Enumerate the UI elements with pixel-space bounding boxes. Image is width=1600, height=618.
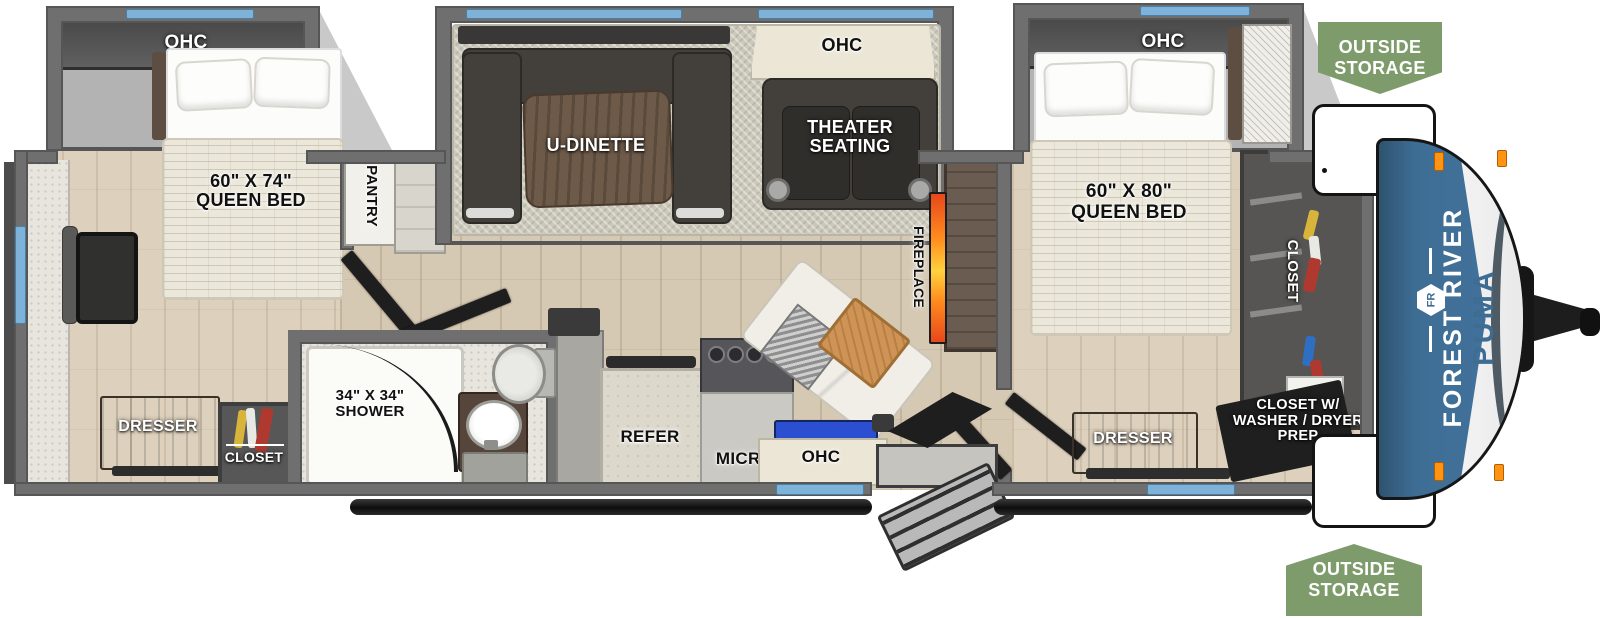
stove-burner-1 bbox=[708, 346, 725, 363]
cap-marker-light-top-1 bbox=[1434, 152, 1444, 171]
rear-bed-label: 60" X 74" QUEEN BED bbox=[166, 172, 336, 211]
rear-wall-window bbox=[15, 226, 26, 324]
outside-storage-top-label: OUTSIDE STORAGE bbox=[1334, 37, 1425, 78]
refrigerator-handles bbox=[606, 356, 696, 368]
rear-wall-outer bbox=[4, 162, 14, 484]
dinette-window bbox=[466, 9, 682, 19]
theater-ohc-label: OHC bbox=[800, 36, 884, 55]
tv-screen bbox=[76, 232, 138, 324]
fireplace-label: FIREPLACE bbox=[908, 212, 926, 322]
front-queen-bed bbox=[1030, 140, 1232, 336]
fireplace-flame-strip bbox=[929, 192, 947, 344]
front-dresser-label: DRESSER bbox=[1074, 430, 1192, 447]
outside-storage-badge-bottom: OUTSIDE STORAGE bbox=[1286, 544, 1422, 616]
dinette-armcap-left bbox=[466, 208, 514, 218]
awning-rail-left bbox=[350, 499, 872, 515]
rear-closet-rod bbox=[226, 444, 284, 446]
front-bed-label: 60" X 80" QUEEN BED bbox=[1040, 182, 1218, 223]
kitchen-ohc-label: OHC bbox=[778, 448, 864, 466]
front-ohc-label: OHC bbox=[1108, 32, 1218, 53]
rear-dresser-runner bbox=[112, 466, 232, 476]
rear-bed-pillow-right bbox=[253, 57, 331, 110]
cap-logo-dash-top bbox=[1429, 248, 1432, 274]
kitchen-wall-cap bbox=[548, 308, 600, 336]
dinette-bench-right bbox=[672, 52, 732, 224]
island-faucet bbox=[872, 414, 894, 432]
dinette-label: U-DINETTE bbox=[524, 136, 668, 155]
floorplan-canvas: OHC 60" X 74" QUEEN BED DRESSER CLOSET P… bbox=[0, 0, 1600, 618]
front-closet-label: CLOSET bbox=[1282, 206, 1300, 336]
cap-marker-light-top-2 bbox=[1497, 150, 1507, 167]
stove-burner-2 bbox=[727, 346, 744, 363]
top-wall-mid2 bbox=[918, 150, 1024, 164]
front-slide-wardrobe bbox=[1242, 24, 1292, 144]
dinette-valance bbox=[458, 26, 730, 44]
rear-closet-label: CLOSET bbox=[218, 450, 290, 465]
theater-window bbox=[758, 9, 934, 19]
front-slide-window bbox=[1140, 6, 1250, 16]
outside-storage-badge-top: OUTSIDE STORAGE bbox=[1318, 22, 1442, 94]
cap-model-label: PUMA bbox=[1467, 241, 1501, 393]
cap-brand-label: FOREST RIVER bbox=[1436, 149, 1470, 485]
theater-cupholder-left bbox=[766, 178, 790, 202]
front-bed-pillow-left bbox=[1043, 61, 1129, 118]
rear-dresser-label: DRESSER bbox=[102, 418, 214, 435]
kitchen-bottom-window bbox=[776, 484, 864, 495]
rear-slide-window bbox=[126, 9, 254, 19]
island-sink-cover bbox=[774, 420, 878, 440]
cap-frame-rivet-top bbox=[1322, 168, 1327, 173]
front-headboard bbox=[1228, 28, 1242, 140]
bath-faucet bbox=[484, 440, 498, 450]
dinette-bench-left bbox=[462, 52, 522, 224]
front-bed-pillow-right bbox=[1129, 58, 1216, 116]
front-bedroom-bottom-window bbox=[1147, 484, 1235, 495]
rear-bed-pillow-left bbox=[175, 58, 254, 112]
entertainment-center bbox=[944, 150, 1002, 352]
cap-marker-light-bottom-2 bbox=[1494, 464, 1504, 481]
kitchen-wall-column bbox=[556, 330, 604, 494]
cap-logo-dash-bottom bbox=[1429, 326, 1432, 352]
dinette-armcap-right bbox=[676, 208, 724, 218]
refrigerator-label: REFER bbox=[602, 428, 698, 446]
bottom-wall-left bbox=[14, 482, 872, 496]
shower-label: 34" X 34" SHOWER bbox=[310, 388, 430, 420]
front-bedroom-wall-upper bbox=[996, 150, 1012, 390]
outside-storage-bottom-label: OUTSIDE STORAGE bbox=[1308, 559, 1399, 600]
rear-headboard bbox=[152, 52, 166, 140]
top-wall-mid1 bbox=[306, 150, 446, 164]
awning-rail-right bbox=[994, 499, 1312, 515]
hitch-coupler bbox=[1580, 308, 1600, 336]
theater-label: THEATER SEATING bbox=[776, 118, 924, 157]
cap-marker-light-bottom-1 bbox=[1434, 462, 1444, 481]
front-dresser-runner bbox=[1086, 468, 1230, 479]
toilet-bowl bbox=[492, 344, 546, 404]
